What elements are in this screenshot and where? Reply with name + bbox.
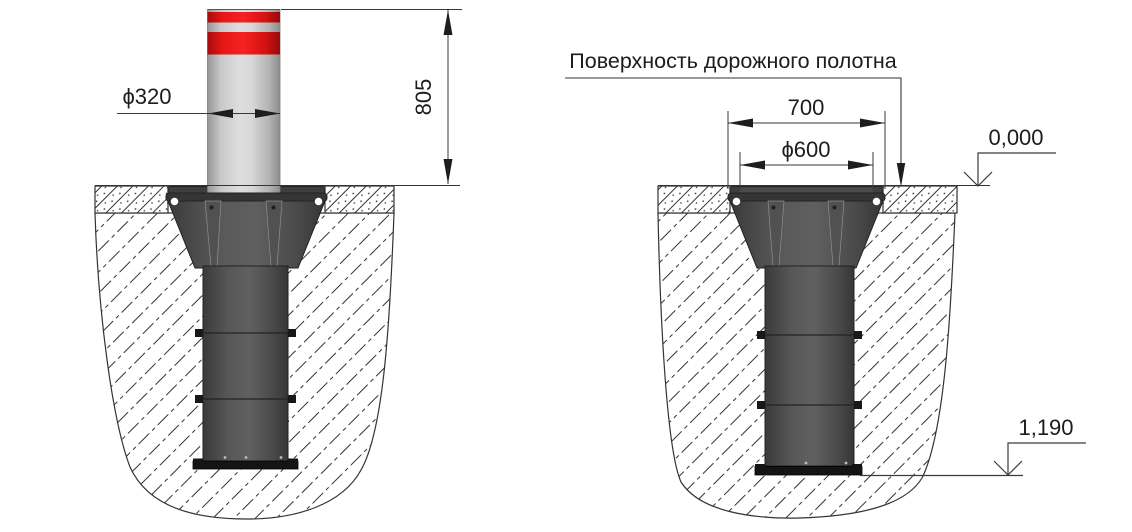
anchor-bolt-hole: [872, 197, 880, 205]
base-plate-end: [852, 464, 862, 469]
base-plate-end: [288, 459, 298, 464]
reflective-stripe-top: [208, 12, 281, 23]
seam-tab: [854, 401, 862, 409]
phi320-label: ϕ320: [122, 84, 171, 109]
base-plate: [193, 461, 298, 469]
technical-drawing-page: ϕ320 805: [0, 0, 1132, 532]
technical-drawing-canvas: ϕ320 805: [0, 0, 1132, 532]
anchor-bolt-hole: [170, 197, 178, 205]
seam-tab: [854, 331, 862, 339]
funnel-body: [730, 201, 883, 268]
seam-tab: [288, 395, 296, 403]
anchor-bolt-hole: [732, 197, 740, 205]
seam-tab: [195, 395, 203, 403]
seam-tab: [757, 401, 765, 409]
base-bolt: [805, 462, 808, 465]
level-1190-label: 1,190: [1018, 415, 1073, 440]
road-slab-left: [658, 186, 730, 213]
road-slab-right: [883, 186, 957, 213]
road-surface-label: Поверхность дорожного полотна: [569, 49, 896, 73]
base-plate-end: [755, 464, 765, 469]
road-slab-left: [95, 186, 168, 213]
height-805-label: 805: [411, 79, 436, 116]
anchor-bolt-hole: [314, 197, 322, 205]
width-700-label: 700: [788, 95, 825, 120]
rib-hole: [833, 206, 837, 210]
casing-cylinder: [765, 266, 854, 466]
base-bolt: [245, 456, 248, 459]
base-bolt: [280, 456, 283, 459]
rib-hole: [272, 206, 276, 210]
casing-cylinder: [203, 266, 288, 464]
base-plate: [755, 467, 862, 476]
flange-plate: [166, 193, 327, 202]
base-bolt: [845, 462, 848, 465]
phi600-label: ϕ600: [781, 137, 830, 162]
rib-hole: [772, 206, 776, 210]
level-0000-label: 0,000: [988, 125, 1043, 150]
flange-plate: [728, 193, 885, 202]
seam-tab: [757, 331, 765, 339]
seam-tab: [288, 329, 296, 337]
seam-tab: [195, 329, 203, 337]
funnel-body: [168, 201, 325, 268]
base-plate-end: [193, 459, 203, 464]
rib-hole: [210, 206, 214, 210]
reflective-stripe-bottom: [208, 32, 281, 55]
road-slab-right: [325, 186, 394, 213]
base-bolt: [224, 456, 227, 459]
bollard: [208, 10, 281, 196]
